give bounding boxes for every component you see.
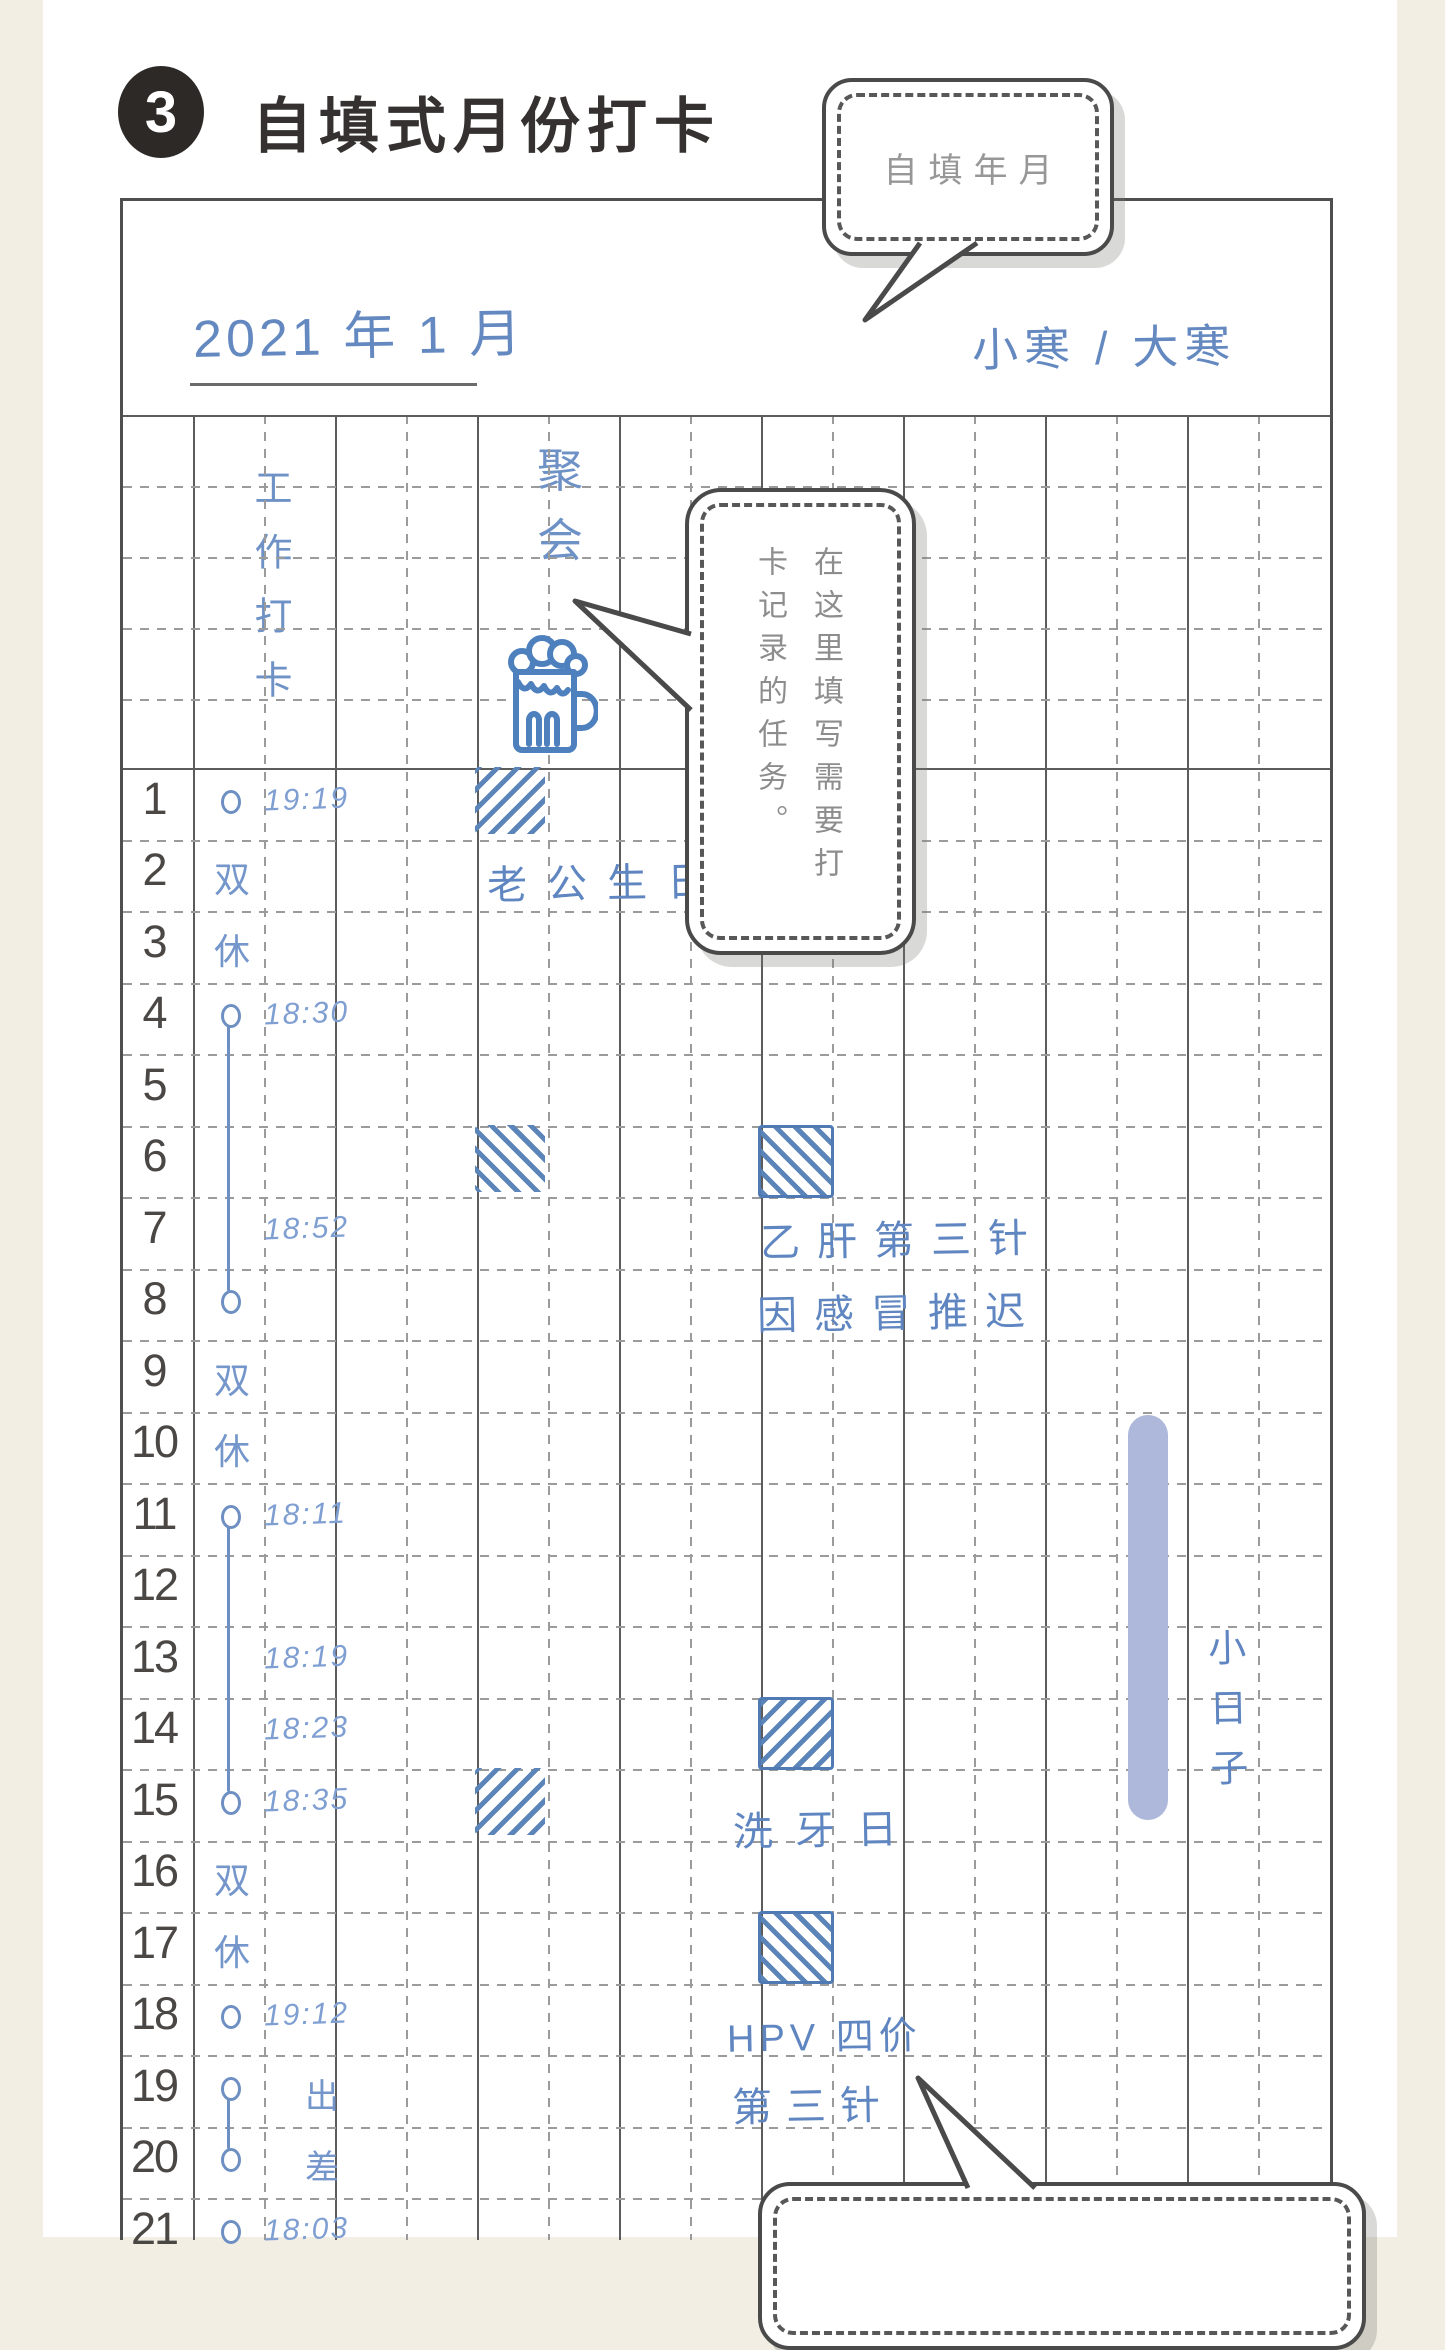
page-background: { "section": {"number": "3", "title": "自… [0, 0, 1445, 2237]
hatch-mark [758, 1125, 834, 1198]
day-number: 13 [130, 1631, 178, 1683]
grid-line-vertical [619, 415, 621, 2240]
work-checkin-circle [221, 2077, 241, 2101]
day-number: 2 [130, 844, 178, 896]
work-checkin-circle [221, 1791, 241, 1815]
grid-line-horizontal-dashed [123, 1841, 1330, 1843]
work-checkin-circle [221, 1505, 241, 1529]
day-number: 3 [130, 916, 178, 968]
grid-line-vertical [1045, 415, 1047, 2240]
day-number: 12 [130, 1559, 178, 1611]
day-number: 5 [130, 1059, 178, 1111]
grid-line-horizontal-dashed [123, 1126, 1330, 1128]
grid-line-vertical [193, 415, 195, 2240]
grid-line-vertical [1187, 415, 1189, 2240]
day-number: 17 [130, 1917, 178, 1969]
day-number: 21 [130, 2203, 178, 2255]
business-trip-note: 出 [300, 2069, 344, 2118]
grid-line-vertical [335, 415, 337, 2240]
grid-line-vertical-dashed [264, 415, 266, 2240]
grid-line-horizontal-dashed [123, 1412, 1330, 1414]
solar-terms-label: 小寒 / 大寒 [971, 310, 1236, 381]
grid-line-horizontal [123, 415, 1330, 417]
grid-line-vertical-dashed [1116, 415, 1118, 2240]
callout-dashed-border [773, 2197, 1351, 2335]
rest-day-note: 休 [210, 1924, 254, 1976]
section-badge: 3 [118, 66, 204, 158]
day-number: 20 [130, 2131, 178, 2183]
rest-day-note: 双 [210, 1852, 254, 1904]
grid-line-horizontal-dashed [123, 983, 1330, 985]
checkin-time: 18:03 [263, 2211, 349, 2248]
checkin-time: 18:11 [263, 1496, 347, 1533]
grid-line-horizontal-dashed [123, 1912, 1330, 1914]
work-checkin-circle [221, 790, 241, 814]
rest-day-note: 双 [210, 1352, 254, 1404]
day-number: 19 [130, 2060, 178, 2112]
checkin-time: 18:19 [263, 1639, 349, 1676]
day-number: 1 [130, 773, 178, 825]
task-note-little-days: 小日子 [1195, 1628, 1253, 1809]
beer-mug-icon [502, 632, 598, 762]
grid-line-vertical [477, 415, 479, 2240]
hatch-mark [475, 767, 545, 834]
rest-day-note: 休 [210, 1423, 254, 1475]
checkin-time: 19:19 [263, 781, 349, 818]
checkin-time: 18:30 [263, 996, 349, 1033]
day-number: 7 [130, 1202, 178, 1254]
grid-line-horizontal-dashed [123, 1269, 1330, 1271]
grid-line-vertical-dashed [406, 415, 408, 2240]
hatch-mark [758, 1697, 834, 1770]
grid-line-horizontal-dashed [123, 2127, 1330, 2129]
task-note-hpv-1: HPV 四价 [727, 2004, 923, 2062]
connector-line [227, 2098, 230, 2150]
day-number: 8 [130, 1273, 178, 1325]
grid-line-horizontal-dashed [123, 1054, 1330, 1056]
business-trip-note: 差 [300, 2140, 344, 2189]
day-number: 6 [130, 1130, 178, 1182]
checkin-time: 19:12 [263, 1997, 349, 2034]
day-number: 18 [130, 1988, 178, 2040]
task-note-hpv-2: 第三针 [732, 2073, 895, 2134]
task-note-hepb-1: 乙肝第三针 [760, 1206, 1046, 1269]
connector-line [227, 1526, 230, 1792]
grid-line-horizontal-dashed [123, 1197, 1330, 1199]
month-label: 2021 年 1 月 [192, 291, 525, 372]
checkin-time: 18:23 [263, 1711, 349, 1748]
grid-line-vertical-dashed [1258, 415, 1260, 2240]
rest-day-note: 双 [210, 851, 254, 903]
grid-line-horizontal-dashed [123, 1984, 1330, 1986]
task-note-hepb-2: 因感冒推迟 [757, 1279, 1043, 1342]
section-number: 3 [145, 79, 177, 146]
grid-line-horizontal-dashed [123, 1340, 1330, 1342]
hatch-mark [475, 1125, 545, 1192]
day-number: 14 [130, 1702, 178, 1754]
rest-day-note: 休 [210, 923, 254, 975]
day-number: 9 [130, 1345, 178, 1397]
callout-tasks-hint: 在这里填写需要打卡记录的任务。 [685, 488, 916, 955]
day-number: 15 [130, 1774, 178, 1826]
hatch-mark [758, 1911, 834, 1984]
day-number: 16 [130, 1845, 178, 1897]
callout-bottom [758, 2182, 1366, 2350]
callout-tasks-hint-text: 在这里填写需要打卡记录的任务。 [741, 546, 853, 921]
work-checkin-circle [221, 2220, 241, 2244]
hatch-mark [475, 1768, 545, 1835]
page-title: 自填式月份打卡 [252, 78, 721, 165]
month-underline [190, 383, 477, 386]
checkin-time: 18:52 [263, 1210, 349, 1247]
callout-fill-year-month-text: 自填年月 [826, 82, 1110, 252]
day-number: 10 [130, 1416, 178, 1468]
callout-fill-year-month: 自填年月 [822, 78, 1114, 256]
task-note-teeth: 洗牙日 [733, 1796, 920, 1857]
checkin-time: 18:35 [263, 1782, 349, 1819]
connector-line [227, 1025, 230, 1291]
day-number: 4 [130, 987, 178, 1039]
highlight-bar [1128, 1415, 1168, 1820]
day-number: 11 [130, 1488, 178, 1540]
